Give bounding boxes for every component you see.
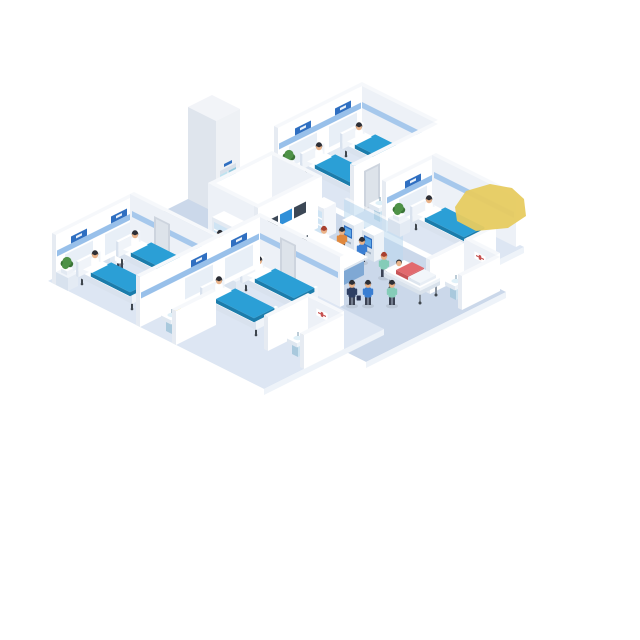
patient-r1-a	[315, 142, 323, 158]
isometric-hospital-svg: 护士站	[0, 0, 640, 640]
patient-r4-a	[215, 276, 223, 292]
patient-r1-b	[355, 122, 363, 138]
patient-r3-a	[91, 250, 99, 266]
patient-r3-b	[131, 230, 139, 246]
hospital-floor-illustration: 护士站	[0, 0, 640, 640]
patient-r2	[425, 195, 433, 211]
